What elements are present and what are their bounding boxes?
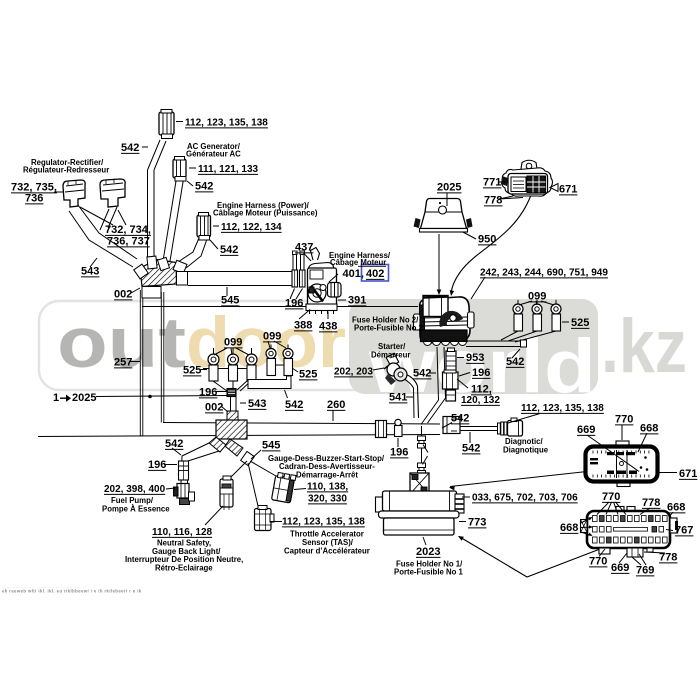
svg-text:732, 734,: 732, 734, bbox=[105, 224, 151, 236]
svg-text:202, 398, 400: 202, 398, 400 bbox=[104, 484, 166, 495]
svg-text:525: 525 bbox=[571, 317, 589, 329]
svg-text:771: 771 bbox=[483, 177, 501, 189]
svg-text:736: 736 bbox=[25, 193, 43, 205]
svg-text:542: 542 bbox=[462, 443, 480, 455]
svg-text:542: 542 bbox=[413, 368, 431, 380]
svg-text:Câbage Moteur: Câbage Moteur bbox=[330, 258, 386, 267]
svg-text:111, 121, 133: 111, 121, 133 bbox=[198, 164, 259, 175]
svg-text:542: 542 bbox=[195, 181, 213, 193]
svg-text:2025: 2025 bbox=[437, 182, 461, 194]
svg-text:545: 545 bbox=[262, 440, 280, 452]
svg-text:Générateur AC: Générateur AC bbox=[186, 150, 241, 159]
svg-text:196: 196 bbox=[390, 447, 408, 459]
svg-text:542: 542 bbox=[506, 356, 524, 368]
svg-text:525: 525 bbox=[299, 369, 317, 381]
svg-text:545: 545 bbox=[221, 295, 239, 307]
svg-text:196: 196 bbox=[148, 459, 166, 471]
svg-text:120, 132: 120, 132 bbox=[461, 395, 500, 406]
svg-text:112,: 112, bbox=[471, 384, 492, 396]
svg-text:668: 668 bbox=[560, 522, 578, 534]
svg-text:2023: 2023 bbox=[416, 546, 440, 558]
svg-text:437: 437 bbox=[295, 242, 313, 254]
svg-text:438: 438 bbox=[319, 321, 337, 333]
svg-text:770: 770 bbox=[615, 414, 633, 426]
svg-text:. .... . .. . ... . .. ..: . .... . .. . ... . .. .. ... .. . .. . … bbox=[2, 585, 79, 589]
svg-text:388: 388 bbox=[294, 320, 312, 332]
svg-text:Rétro-Eclairage: Rétro-Eclairage bbox=[155, 564, 213, 573]
svg-text:Capteur d’Accélérateur: Capteur d’Accélérateur bbox=[284, 546, 370, 555]
svg-text:.kz: .kz bbox=[601, 304, 687, 389]
svg-text:257: 257 bbox=[114, 357, 132, 369]
svg-text:541: 541 bbox=[389, 392, 407, 404]
svg-text:542: 542 bbox=[285, 399, 303, 411]
svg-text:736, 737: 736, 737 bbox=[107, 236, 150, 248]
svg-text:669: 669 bbox=[611, 562, 629, 574]
svg-text:202, 203: 202, 203 bbox=[334, 367, 373, 378]
svg-text:542: 542 bbox=[451, 413, 469, 425]
svg-text:Démarrage-Arrêt: Démarrage-Arrêt bbox=[296, 471, 358, 480]
svg-text:669: 669 bbox=[577, 424, 595, 436]
svg-text:Régulateur-Redresseur: Régulateur-Redresseur bbox=[23, 166, 109, 175]
svg-text:ek raeweb wlti ikl. ikl. eu ri: ek raeweb wlti ikl. ikl. eu riklbbeewi i… bbox=[2, 589, 142, 594]
svg-text:950: 950 bbox=[478, 234, 496, 246]
svg-text:196: 196 bbox=[285, 298, 303, 310]
svg-text:out: out bbox=[57, 304, 186, 383]
svg-text:Pompe À Essence: Pompe À Essence bbox=[102, 505, 170, 514]
svg-text:671: 671 bbox=[679, 468, 697, 480]
svg-text:778: 778 bbox=[484, 195, 502, 207]
svg-text:Câblage Moteur (Puissance): Câblage Moteur (Puissance) bbox=[213, 209, 318, 218]
svg-text:769: 769 bbox=[636, 565, 654, 577]
svg-text:2025: 2025 bbox=[72, 392, 96, 404]
svg-text:391: 391 bbox=[348, 295, 366, 307]
svg-text:525: 525 bbox=[183, 365, 201, 377]
svg-text:Porte-Fusible No 2: Porte-Fusible No 2 bbox=[354, 324, 424, 333]
svg-text:542: 542 bbox=[220, 244, 238, 256]
svg-text:542: 542 bbox=[165, 438, 183, 450]
svg-text:668: 668 bbox=[640, 423, 658, 435]
svg-text:Porte-Fusible No 1: Porte-Fusible No 1 bbox=[394, 568, 464, 577]
svg-text:778: 778 bbox=[642, 497, 660, 509]
svg-text:767: 767 bbox=[675, 525, 693, 537]
svg-text:778: 778 bbox=[659, 552, 677, 564]
svg-text:033, 675, 702, 703, 706: 033, 675, 702, 703, 706 bbox=[472, 493, 578, 504]
svg-text:543: 543 bbox=[248, 398, 266, 410]
svg-text:770: 770 bbox=[602, 491, 620, 503]
svg-text:260: 260 bbox=[327, 399, 345, 411]
svg-text:Diagnotique: Diagnotique bbox=[503, 446, 549, 455]
svg-text:671: 671 bbox=[559, 184, 577, 196]
svg-text:112, 123, 135, 138: 112, 123, 135, 138 bbox=[282, 517, 365, 528]
svg-text:196: 196 bbox=[199, 387, 217, 399]
svg-text:002: 002 bbox=[205, 402, 223, 414]
svg-text:1: 1 bbox=[53, 392, 59, 404]
svg-text:110, 138,: 110, 138, bbox=[307, 482, 348, 493]
svg-text:196: 196 bbox=[472, 367, 490, 379]
svg-text:112, 122, 134: 112, 122, 134 bbox=[221, 222, 282, 233]
svg-text:099: 099 bbox=[528, 291, 546, 303]
svg-text:953: 953 bbox=[466, 352, 484, 364]
svg-text:112, 123, 135, 138: 112, 123, 135, 138 bbox=[185, 118, 268, 129]
svg-text:542: 542 bbox=[121, 142, 139, 154]
svg-text:320, 330: 320, 330 bbox=[308, 494, 347, 505]
svg-text:773: 773 bbox=[468, 517, 486, 529]
svg-text:112, 123, 135, 138: 112, 123, 135, 138 bbox=[521, 403, 604, 414]
svg-text:002: 002 bbox=[114, 289, 132, 301]
svg-text:668: 668 bbox=[667, 502, 685, 514]
svg-text:110, 116, 128: 110, 116, 128 bbox=[152, 527, 213, 538]
svg-text:402: 402 bbox=[366, 268, 384, 280]
svg-text:770: 770 bbox=[589, 556, 607, 568]
svg-text:099: 099 bbox=[263, 331, 281, 343]
svg-text:Démarreur: Démarreur bbox=[371, 351, 410, 360]
svg-text:099: 099 bbox=[224, 337, 242, 349]
svg-text:543: 543 bbox=[81, 266, 99, 278]
svg-text:242, 243, 244, 690, 751, 949: 242, 243, 244, 690, 751, 949 bbox=[480, 268, 608, 279]
